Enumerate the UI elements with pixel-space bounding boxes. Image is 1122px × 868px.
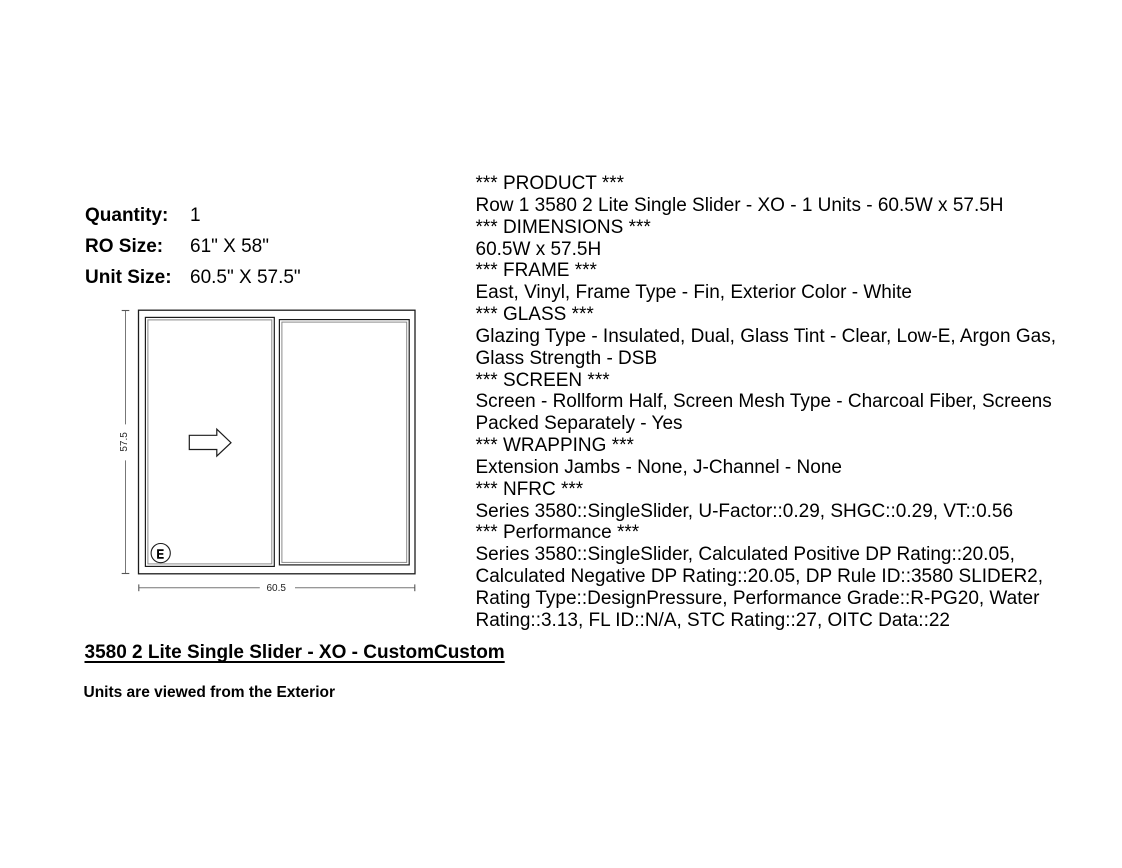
- svg-text:57.5: 57.5: [119, 432, 130, 452]
- svg-text:60.5: 60.5: [266, 583, 286, 594]
